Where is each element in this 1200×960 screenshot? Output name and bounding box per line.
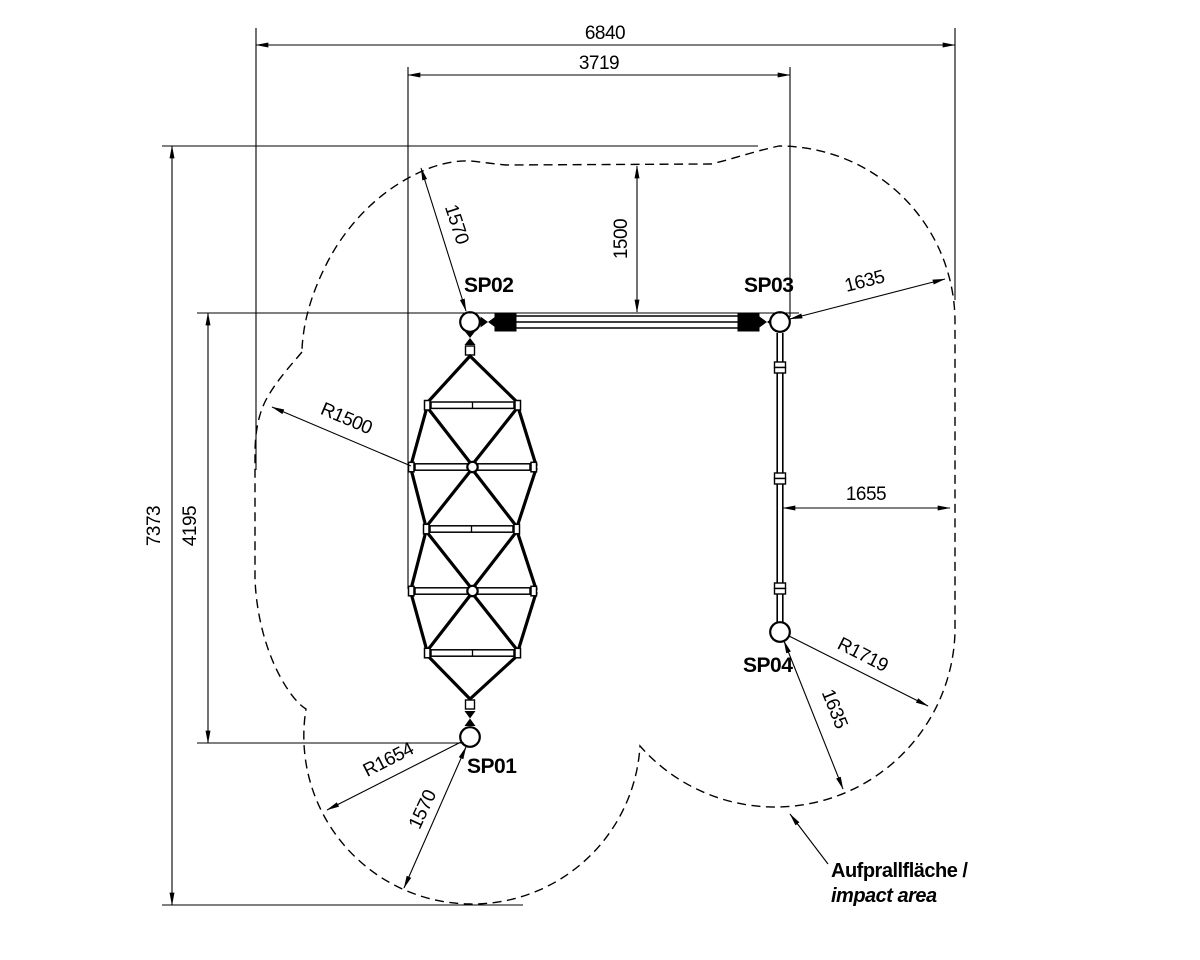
dim-sp01-clearance: 1570 <box>405 787 441 832</box>
rope-connector <box>775 479 786 485</box>
net-ring <box>467 586 477 596</box>
dim-sp04-clearance: 1635 <box>817 686 852 731</box>
dim-top-clearance: 1500 <box>611 219 632 259</box>
rope-connector <box>775 473 786 479</box>
shackle-icon <box>488 317 496 328</box>
dim-total-width: 6840 <box>585 23 625 44</box>
dim-beam-span: 3719 <box>579 53 619 74</box>
shackle-icon <box>481 317 489 328</box>
drawing-canvas: 6840 3719 7373 4195 1500 1570 R1500 R165… <box>0 0 1200 960</box>
net-rung <box>424 524 520 534</box>
dim-sp04-radius: R1719 <box>834 634 891 677</box>
anchor-sp03 <box>770 312 790 332</box>
dim-sp01-radius: R1654 <box>360 738 418 781</box>
rope-post <box>775 333 786 622</box>
technical-drawing-page: 6840 3719 7373 4195 1500 1570 R1500 R165… <box>0 0 1200 960</box>
anchor-sp04 <box>770 622 790 642</box>
net-rung <box>425 648 521 658</box>
extension-lines <box>162 28 955 905</box>
chain-link <box>466 346 475 355</box>
shackle-icon <box>465 338 476 345</box>
label-sp02: SP02 <box>464 274 513 297</box>
chain-link <box>466 700 475 709</box>
shackle-icon <box>760 317 768 328</box>
rope-connector <box>775 589 786 595</box>
beam-end-fitting <box>495 313 516 331</box>
shackle-icon <box>465 719 476 727</box>
dim-anchor-span: 4195 <box>180 506 201 546</box>
dim-sp03-clearance: 1635 <box>842 266 886 296</box>
dim-net-radius: R1500 <box>317 399 374 439</box>
climbing-net <box>409 331 537 726</box>
net-ring <box>467 462 477 472</box>
shackle-icon <box>465 711 476 719</box>
impact-area-note-de: Aufprallfläche / <box>831 860 968 882</box>
net-rung <box>409 586 537 596</box>
rope-connector <box>775 583 786 589</box>
dim-side-clearance: 1655 <box>846 484 886 505</box>
impact-area-boundary <box>255 146 955 904</box>
dim-sp02-clearance: 1570 <box>440 202 472 247</box>
impact-area-leader <box>790 814 828 864</box>
net-rung <box>425 401 521 411</box>
label-sp03: SP03 <box>744 274 793 297</box>
dim-total-height: 7373 <box>144 506 165 546</box>
dimension-lines <box>172 45 955 905</box>
rope-connector <box>775 368 786 374</box>
rope-connector <box>775 362 786 368</box>
label-sp04: SP04 <box>743 654 793 677</box>
label-sp01: SP01 <box>467 755 517 778</box>
net-rung <box>409 462 537 472</box>
beam-end-fitting <box>738 313 759 331</box>
balance-beam <box>481 313 775 331</box>
anchor-sp01 <box>460 727 480 747</box>
anchor-sp02 <box>460 312 480 332</box>
impact-area-note-en: impact area <box>831 885 937 907</box>
